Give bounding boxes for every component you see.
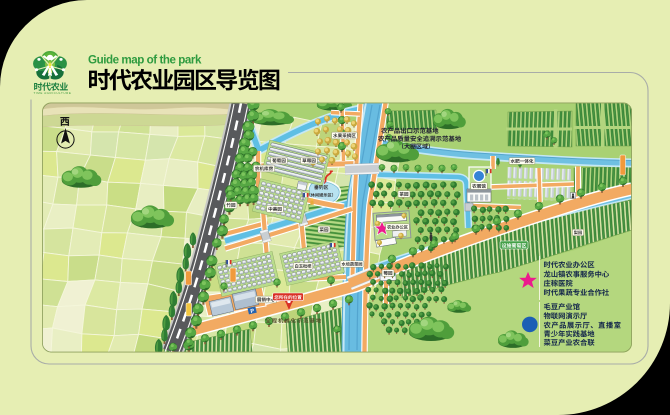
svg-text:Guide map of the park: Guide map of the park: [88, 53, 202, 66]
svg-text:TIME AGRICULTURE: TIME AGRICULTURE: [34, 91, 72, 95]
